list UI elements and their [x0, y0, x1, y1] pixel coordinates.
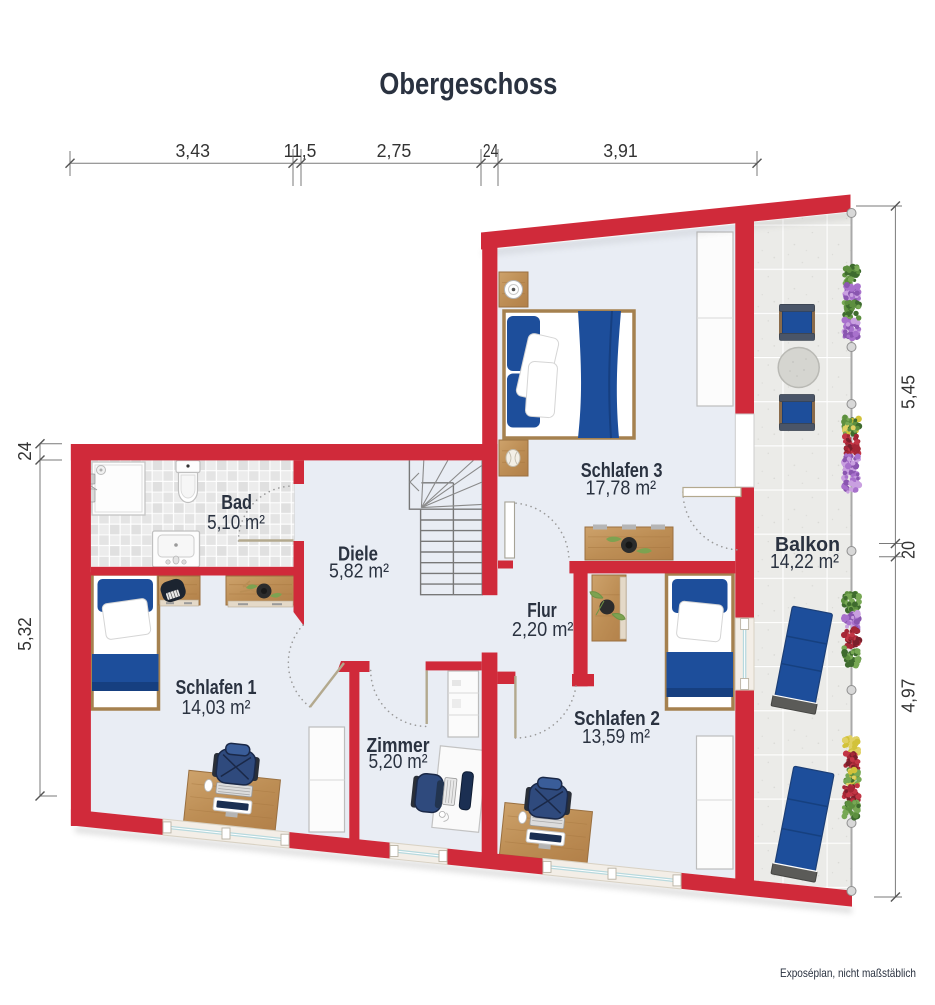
svg-text:3,43: 3,43: [175, 141, 210, 161]
svg-text:2,20 m²: 2,20 m²: [512, 619, 574, 641]
svg-text:11,5: 11,5: [284, 141, 317, 161]
svg-text:5,45: 5,45: [899, 375, 919, 409]
svg-text:5,82 m²: 5,82 m²: [329, 561, 389, 583]
svg-text:Schlafen 1: Schlafen 1: [176, 677, 257, 699]
svg-text:5,32: 5,32: [15, 617, 35, 651]
svg-text:Bad: Bad: [221, 492, 252, 514]
svg-text:13,59 m²: 13,59 m²: [582, 726, 650, 748]
svg-text:Exposéplan, nicht maßstäblich: Exposéplan, nicht maßstäblich: [780, 966, 916, 980]
svg-text:3,91: 3,91: [603, 141, 638, 161]
svg-text:4,97: 4,97: [899, 679, 919, 713]
svg-text:2,75: 2,75: [377, 141, 412, 161]
svg-text:5,20 m²: 5,20 m²: [369, 751, 428, 773]
svg-text:17,78 m²: 17,78 m²: [586, 478, 657, 500]
svg-text:20: 20: [899, 541, 919, 559]
svg-text:24: 24: [15, 442, 35, 461]
svg-text:Obergeschoss: Obergeschoss: [379, 66, 557, 101]
svg-text:14,03 m²: 14,03 m²: [182, 697, 251, 719]
svg-text:5,10 m²: 5,10 m²: [207, 512, 265, 534]
svg-text:14,22 m²: 14,22 m²: [770, 551, 839, 573]
svg-text:24: 24: [483, 141, 498, 161]
